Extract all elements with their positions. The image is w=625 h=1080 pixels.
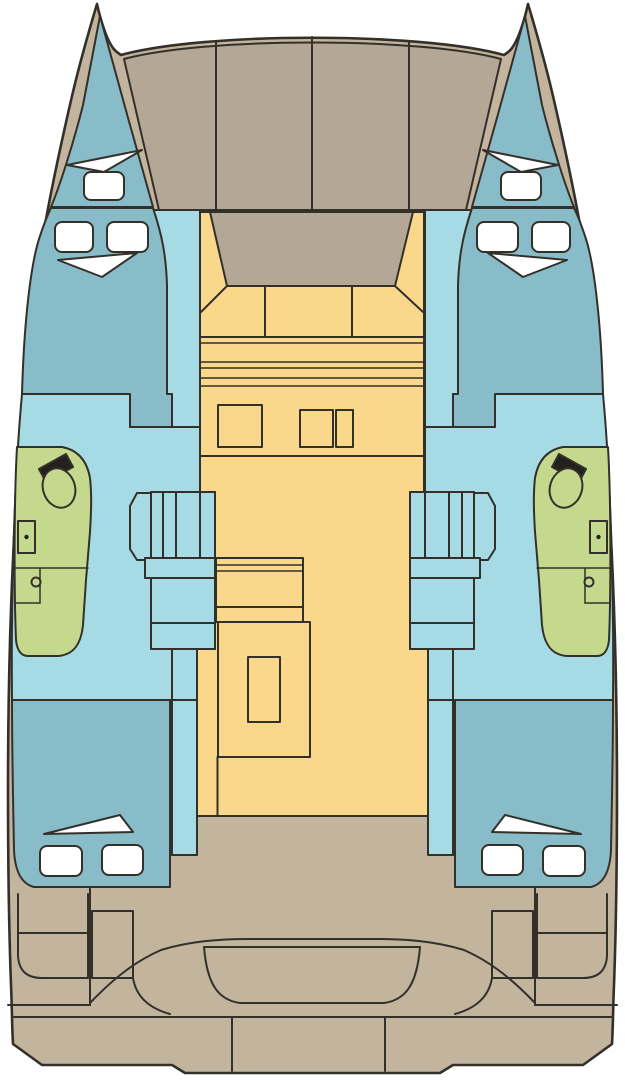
port-aft-cabin bbox=[12, 700, 170, 887]
salon-front-roof bbox=[210, 212, 413, 286]
cockpit-bench-seat bbox=[204, 947, 420, 1003]
port-head-drain bbox=[32, 578, 41, 587]
port-step-block-lower bbox=[151, 578, 215, 649]
port-step-block-upper bbox=[151, 492, 215, 558]
port-step-side bbox=[130, 493, 151, 560]
port-step-landing bbox=[145, 558, 215, 578]
catamaran-deck-plan bbox=[0, 0, 625, 1080]
deck-plan-canvas bbox=[0, 0, 625, 1080]
port-aft-hatch-1 bbox=[40, 846, 82, 876]
port-cistern-dot bbox=[24, 535, 28, 539]
port-forward-hatch-1 bbox=[55, 222, 93, 252]
port-aft-hatch-2 bbox=[102, 845, 143, 875]
port-forward-hatch-2 bbox=[107, 222, 148, 252]
port-forward-cabin bbox=[22, 208, 172, 427]
salon-floor bbox=[197, 212, 428, 816]
port-bow-hatch bbox=[84, 172, 124, 200]
